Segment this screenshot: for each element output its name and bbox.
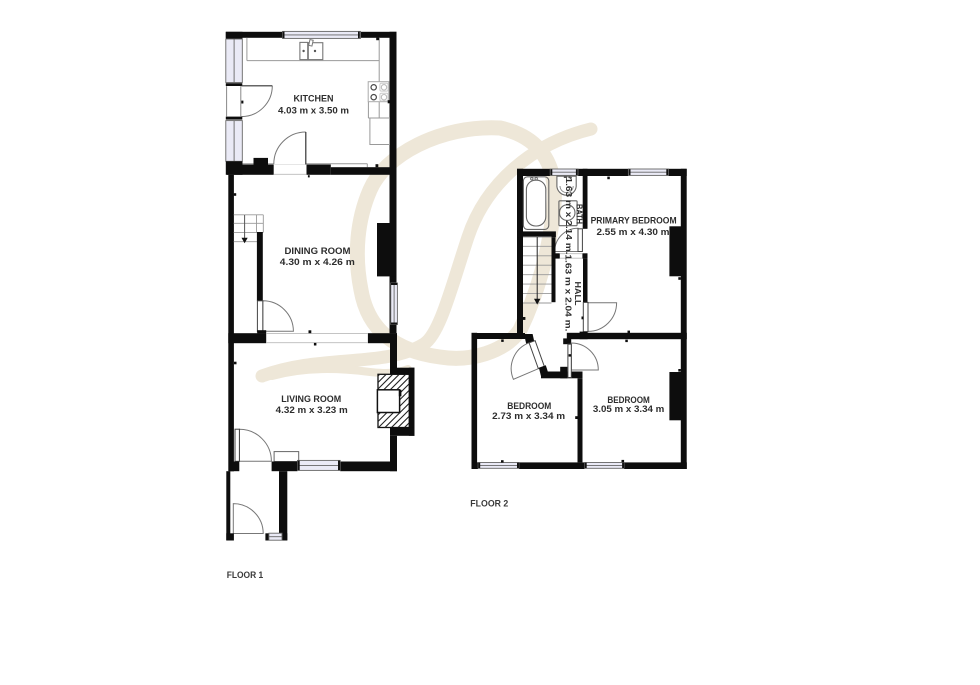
- svg-text:KITCHEN: KITCHEN: [294, 93, 334, 104]
- svg-text:2.55 m x 4.30 m: 2.55 m x 4.30 m: [597, 227, 670, 238]
- svg-text:1.63 m x 2.04 m.: 1.63 m x 2.04 m.: [564, 254, 573, 331]
- svg-text:4.32 m x 3.23 m: 4.32 m x 3.23 m: [276, 405, 348, 416]
- svg-text:1.63 m x 2.14 m.: 1.63 m x 2.14 m.: [564, 178, 573, 255]
- svg-text:HALL: HALL: [573, 282, 582, 306]
- svg-text:FLOOR 2: FLOOR 2: [470, 499, 508, 510]
- svg-text:4.30 m x 4.26 m: 4.30 m x 4.26 m: [280, 257, 355, 268]
- svg-text:FLOOR 1: FLOOR 1: [227, 570, 264, 581]
- svg-text:4.03 m x 3.50 m: 4.03 m x 3.50 m: [278, 105, 349, 116]
- svg-text:DINING ROOM: DINING ROOM: [285, 246, 351, 257]
- svg-text:BATH: BATH: [575, 204, 584, 224]
- svg-text:LIVING ROOM: LIVING ROOM: [281, 394, 341, 405]
- svg-text:PRIMARY BEDROOM: PRIMARY BEDROOM: [591, 215, 677, 226]
- svg-text:2.73 m x 3.34 m: 2.73 m x 3.34 m: [492, 411, 565, 422]
- svg-text:3.05 m x 3.34 m: 3.05 m x 3.34 m: [593, 404, 665, 415]
